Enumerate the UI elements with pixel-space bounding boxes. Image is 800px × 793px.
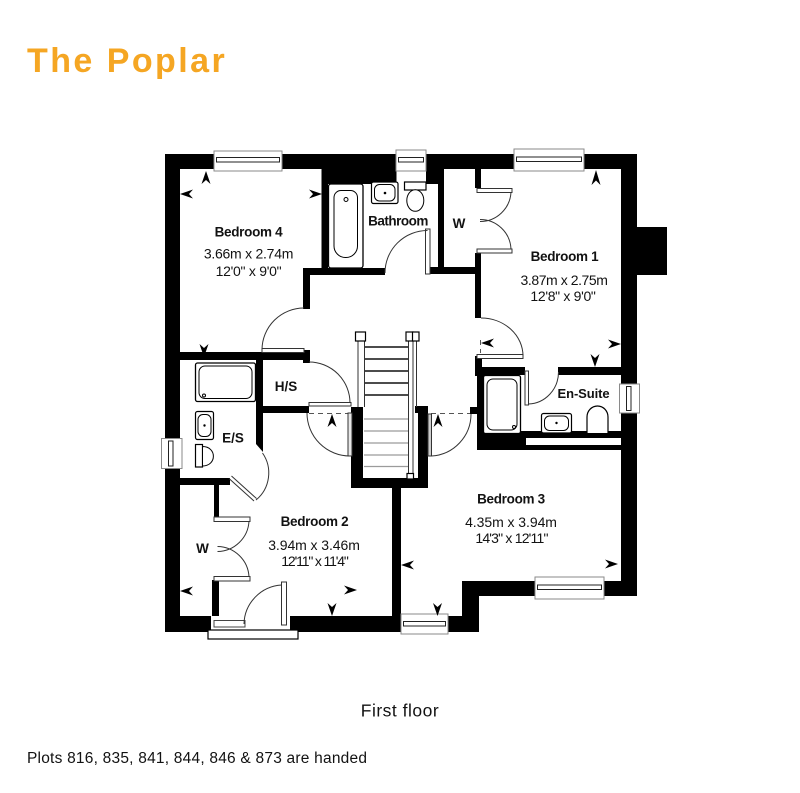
svg-text:W: W: [196, 541, 209, 556]
svg-text:12'8" x 9'0": 12'8" x 9'0": [530, 288, 596, 304]
svg-text:E/S: E/S: [222, 431, 244, 446]
svg-text:12'11" x 11'4": 12'11" x 11'4": [281, 553, 349, 569]
svg-text:Bathroom: Bathroom: [368, 214, 428, 229]
svg-text:Bedroom 3: Bedroom 3: [477, 492, 546, 507]
svg-text:En-Suite: En-Suite: [558, 386, 610, 401]
svg-text:Bedroom 2: Bedroom 2: [281, 514, 349, 529]
svg-text:4.35m x 3.94m: 4.35m x 3.94m: [465, 514, 557, 530]
svg-text:Plots 816, 835, 841, 844, 846: Plots 816, 835, 841, 844, 846 & 873 are …: [27, 750, 367, 767]
svg-text:12'0" x 9'0": 12'0" x 9'0": [216, 263, 282, 279]
svg-text:3.87m x 2.75m: 3.87m x 2.75m: [521, 272, 608, 288]
svg-text:Bedroom 1: Bedroom 1: [531, 249, 600, 264]
svg-text:3.94m x 3.46m: 3.94m x 3.46m: [268, 537, 360, 553]
svg-text:W: W: [453, 216, 466, 231]
svg-text:First floor: First floor: [361, 701, 439, 721]
svg-text:3.66m x 2.74m: 3.66m x 2.74m: [204, 246, 293, 262]
svg-text:The Poplar: The Poplar: [27, 42, 227, 80]
svg-text:H/S: H/S: [275, 379, 298, 394]
svg-text:Bedroom 4: Bedroom 4: [215, 225, 284, 240]
svg-text:14'3" x 12'11": 14'3" x 12'11": [475, 530, 548, 546]
